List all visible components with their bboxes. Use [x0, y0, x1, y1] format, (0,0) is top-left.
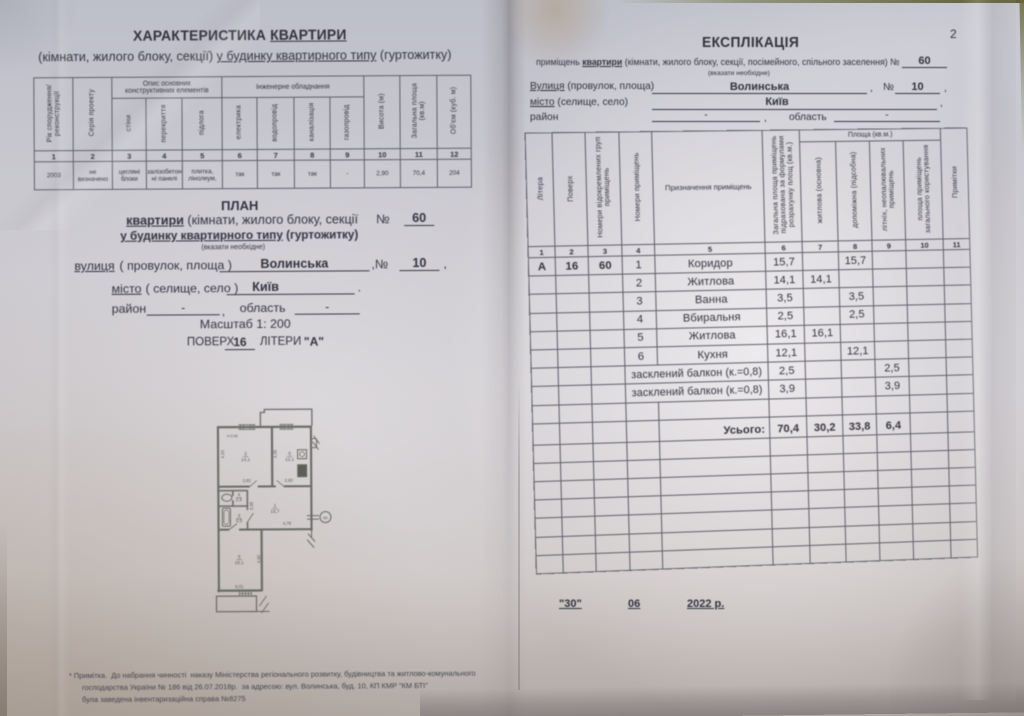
svg-text:4,78: 4,78 [283, 521, 292, 526]
svg-text:60: 60 [323, 515, 328, 520]
svg-text:2: 2 [244, 451, 247, 456]
svg-text:4,36: 4,36 [273, 449, 278, 458]
svg-text:5: 5 [238, 554, 241, 559]
svg-text:3,38: 3,38 [249, 501, 254, 510]
svg-text:6: 6 [288, 451, 291, 456]
svg-text:5,01: 5,01 [235, 584, 244, 589]
svg-text:12,1: 12,1 [285, 457, 294, 462]
svg-text:15,7: 15,7 [270, 509, 279, 514]
svg-text:4,33: 4,33 [220, 449, 225, 458]
svg-text:h=2,80: h=2,80 [227, 434, 238, 438]
svg-text:14,1: 14,1 [241, 457, 250, 462]
svg-text:4,90: 4,90 [256, 554, 261, 563]
svg-text:2,60: 2,60 [285, 478, 294, 483]
svg-text:2,82: 2,82 [243, 478, 252, 483]
svg-text:16,1: 16,1 [235, 560, 244, 565]
svg-text:1: 1 [274, 503, 277, 508]
